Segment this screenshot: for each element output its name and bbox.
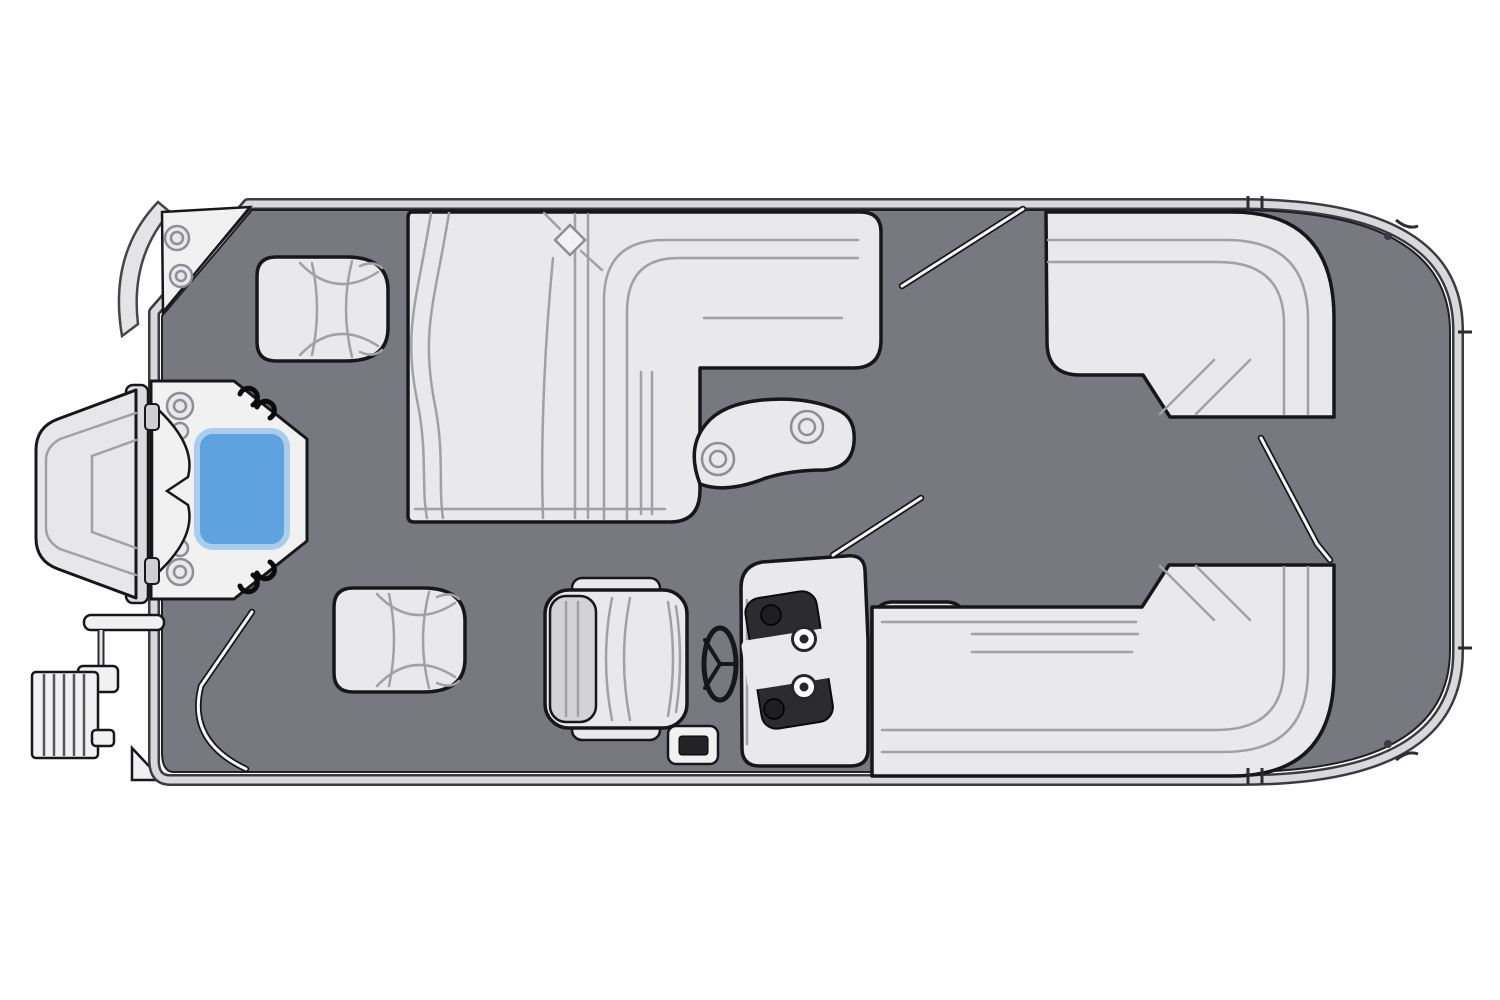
seat-back [550, 596, 596, 722]
gauge-icon [800, 683, 809, 692]
step-box [668, 726, 718, 764]
grab-bar [84, 615, 164, 630]
gauge-icon [764, 699, 784, 719]
deck-fitting-icon [176, 271, 186, 281]
motor-cowling [36, 390, 136, 598]
deck-fitting-icon [171, 232, 183, 244]
gauge-icon [800, 635, 809, 644]
gauge-icon [761, 605, 781, 625]
motor-clamp-icon [145, 404, 159, 430]
stern-seat-starboard [334, 588, 465, 692]
hinge-icon [174, 400, 186, 412]
ladder-bracket [92, 730, 114, 746]
seat-cushion [257, 257, 388, 361]
deck-screw-icon [1384, 740, 1392, 748]
floor-plan-stage [0, 0, 1500, 1000]
pontoon-floor-plan [0, 0, 1500, 1000]
captains-chair [545, 578, 687, 740]
deck-screw-icon [1384, 232, 1392, 240]
motor-clamp-icon [145, 558, 159, 584]
step-box-inset [679, 736, 708, 755]
cupholder-icon [799, 419, 815, 435]
blue-table [197, 431, 287, 547]
stern-seat-port [257, 257, 388, 361]
helm-console [734, 556, 868, 766]
hinge-icon [174, 566, 186, 578]
cupholder-icon [710, 451, 726, 467]
